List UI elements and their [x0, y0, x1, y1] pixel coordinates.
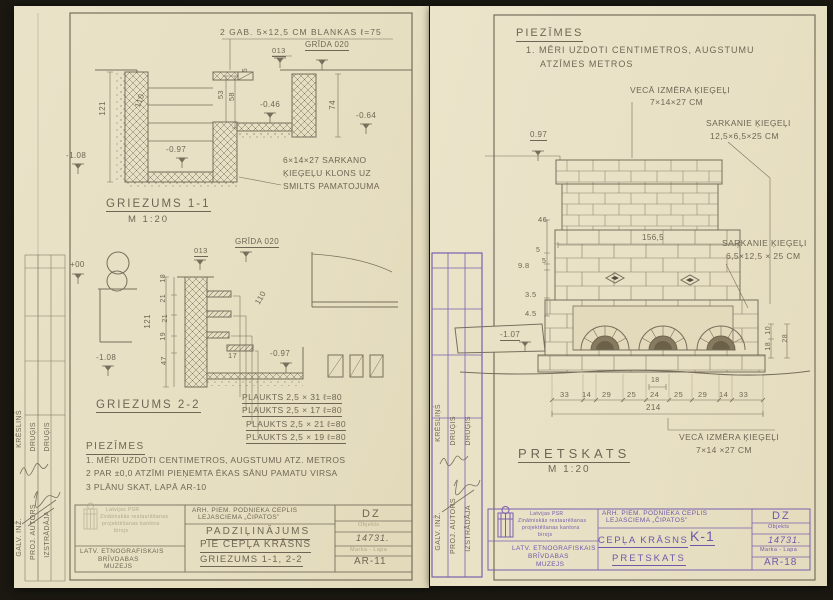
dim-label: 28	[782, 334, 789, 343]
role-galv-inz: GALV. INŽ.	[435, 512, 442, 551]
name-drugis-1: DRUĢIS	[30, 422, 37, 452]
tb-project-line-2: LEJASCIEMA „ČIPATOS”	[198, 515, 280, 522]
tb-title-1: CEPĻA KRĀSNS	[598, 536, 688, 548]
name-drugis-2: DRUĢIS	[44, 422, 51, 452]
role-izstradaja: IZSTRĀDĀJA	[44, 511, 51, 558]
section-title-1-1: GRIEZUMS 1-1	[106, 198, 211, 212]
kiln-elevation-drawing	[455, 160, 810, 375]
stamp-line-1: Latvijas PSR	[106, 508, 139, 513]
dim-label: 3.5	[525, 291, 537, 299]
signature-scribbles	[440, 456, 480, 512]
callout-veca-bottom-1: VECĀ IZMĒRA ĶIEĢEĻI	[679, 433, 779, 442]
grida-level-label: GRĪDA 020	[235, 238, 279, 248]
dim-label: 33	[739, 391, 748, 399]
museum-stamp-icon	[498, 507, 513, 538]
role-proj-autors: PROJ. AUTORS	[30, 504, 37, 560]
callout-veca-1: VECĀ IZMĒRA ĶIEĢEĻI	[630, 86, 730, 95]
dim-label: 25	[627, 391, 636, 399]
note-line-1: 1. MĒRI UZDOTI CENTIMETROS, AUGSTUMU ATZ…	[86, 456, 345, 465]
role-galv-inz: GALV. INŽ.	[16, 518, 23, 557]
tb-org-3: MUZEJS	[536, 562, 564, 569]
section-scale-1-1: M 1:20	[128, 215, 169, 225]
callout-sarkanie-1b: 12,5×6,5×25 CM	[710, 132, 779, 141]
view-scale: M 1:20	[548, 465, 591, 476]
stamp-line-2: Zinātniskās restaurēšanas	[100, 515, 168, 520]
name-drugis-1: DRUĢIS	[450, 416, 457, 446]
dim-label: 24	[650, 391, 659, 399]
level-label: -0.64	[356, 112, 376, 120]
tb-dz: DZ	[772, 511, 791, 523]
stamp-line-4: birojs	[538, 533, 552, 538]
shelf-label-3: PLAUKTS 2,5 × 21 ℓ=80	[246, 420, 346, 431]
name-kreslins: KRĒSLIŅŠ	[435, 404, 442, 442]
tb-title-3: GRIEZUMS 1-1, 2-2	[200, 555, 303, 567]
dim-label: 29	[602, 391, 611, 399]
tb-marka-label: Marka - Lapa	[350, 548, 387, 554]
dim-label: 14	[719, 391, 728, 399]
name-drugis-2: DRUĢIS	[465, 416, 472, 446]
dim-label: 25	[674, 391, 683, 399]
note-line-3: 3 PLĀNU SKAT, LAPĀ AR-10	[86, 483, 206, 492]
callout-sarkanie-2a: SARKANIE ĶIEĢEĻI	[722, 239, 807, 248]
dim-label: 21	[162, 314, 169, 323]
scanned-drawing-stage: 2 GAB. 5×12,5 CM BLANKAS ℓ=75GRĪDA 02001…	[0, 0, 833, 600]
shelf-label-4: PLAUKTS 2,5 × 19 ℓ=80	[246, 433, 346, 444]
tb-title-k1: K-1	[690, 529, 715, 546]
dim-label: 10	[765, 326, 772, 335]
role-izstradaja: IZSTRĀDĀJA	[465, 505, 472, 552]
note-line-2: 2 PAR ±0,0 ATZĪMI PIEŅEMTA ĒKAS SĀNU PAM…	[86, 469, 338, 478]
dim-label: 156,5	[642, 234, 664, 242]
role-proj-autors: PROJ. AUTORS	[450, 498, 457, 554]
dim-label: 74	[329, 100, 337, 110]
level-label: -1.07	[500, 331, 520, 341]
callout-veca-2: 7×14×27 CM	[650, 98, 703, 107]
shelf-label-1: PLAUKTS 2,5 × 31 ℓ=80	[242, 393, 342, 404]
dim-label: 18	[765, 342, 772, 351]
note-klons-1: 6×14×27 SARKANO	[283, 156, 367, 165]
stamp-line-4: birojs	[114, 529, 128, 534]
tb-org-3: MUZEJS	[104, 564, 132, 571]
view-title: PRETSKATS	[518, 447, 630, 463]
dim-label: 5	[242, 68, 249, 72]
dim-label: 5	[542, 258, 546, 265]
signature-scribbles	[20, 463, 60, 526]
dim-label: 14	[582, 391, 591, 399]
name-kreslins: KRĒSLIŅŠ	[16, 410, 23, 448]
tb-org-2: BRĪVDABAS	[528, 554, 569, 561]
level-label: -0.46	[260, 101, 280, 109]
dim-label: 17	[228, 352, 237, 360]
tb-org-1: LATV. ETNOGRAFISKAIS	[80, 549, 164, 556]
level-label: -1.08	[66, 152, 86, 160]
dim-label: 21	[160, 294, 167, 303]
tb-objekts-label: Objekts	[768, 525, 789, 531]
callout-sarkanie-2b: 6,5×12,5 × 25 CM	[726, 252, 800, 261]
shelf-label-2: PLAUKTS 2,5 × 17 ℓ=80	[242, 406, 342, 417]
notes-title: PIEZĪMES	[86, 442, 145, 455]
tb-sheet-number: AR-18	[764, 558, 797, 569]
tb-object-number: 14731.	[356, 534, 390, 543]
tb-title-1: PADZIĻINĀJUMS	[206, 527, 310, 540]
level-label: -0.97	[270, 350, 290, 358]
dim-label: 121	[144, 314, 152, 329]
dim-label: 58	[228, 92, 236, 101]
tb-project-line-2: LEJASCIEMA „ČIPATOS”	[606, 518, 688, 525]
dim-label: 18	[160, 274, 167, 283]
dim-label: 18	[651, 377, 660, 384]
dim-label: 53	[217, 90, 225, 99]
stamp-line-3: projektēšanas kantora	[102, 522, 160, 527]
tb-title-2: PIE CEPĻA KRĀSNS	[200, 540, 311, 553]
note-klons-3: SMILTS PAMATOJUMA	[283, 182, 380, 191]
note-line-2: ATZĪMES METROS	[540, 60, 633, 69]
note-line-1: 1. MĒRI UZDOTI CENTIMETROS, AUGSTUMU	[526, 46, 755, 55]
right-drawing-sheet: PIEZĪMES1. MĒRI UZDOTI CENTIMETROS, AUGS…	[430, 6, 827, 586]
dim-label: 19	[160, 332, 167, 341]
dim-label: 214	[646, 404, 661, 412]
left-drawing-sheet: 2 GAB. 5×12,5 CM BLANKAS ℓ=75GRĪDA 02001…	[14, 6, 429, 588]
tb-dz: DZ	[362, 509, 381, 521]
callout-sarkanie-1a: SARKANIE ĶIEĢEĻI	[706, 119, 791, 128]
notes-title: PIEZĪMES	[516, 28, 583, 42]
tb-objekts-label: Objekts	[358, 523, 379, 529]
callout-veca-bottom-2: 7×14 ×27 CM	[696, 446, 752, 455]
dim-label: 5	[536, 247, 540, 254]
dim-label: 013	[272, 47, 286, 57]
level-label: -0.97	[166, 146, 186, 154]
tb-title-2: PRETSKATS	[612, 554, 686, 566]
dim-label: 4.5	[525, 310, 537, 318]
section-title-2-2: GRIEZUMS 2-2	[96, 399, 201, 413]
tb-sheet-number: AR-11	[354, 557, 387, 568]
dim-label: 47	[160, 356, 168, 365]
museum-stamp-icon	[84, 503, 97, 529]
grida-level-label: GRĪDA 020	[305, 41, 349, 51]
tb-marka-label: Marka - Lapa	[760, 548, 797, 554]
note-klons-2: ĶIEĢEĻU KLONS UZ	[283, 169, 371, 178]
level-label: -1.08	[96, 354, 116, 362]
note-blankas: 2 GAB. 5×12,5 CM BLANKAS ℓ=75	[220, 28, 382, 37]
dim-label: 013	[194, 247, 208, 257]
dim-label: 33	[560, 391, 569, 399]
tb-object-number: 14731.	[768, 536, 802, 545]
stamp-line-2: Zinātniskās restaurēšanas	[518, 519, 586, 524]
dim-label: 9.8	[518, 262, 530, 270]
level-label: 0.97	[530, 131, 547, 141]
dim-label: 121	[99, 101, 107, 116]
dim-label: 29	[698, 391, 707, 399]
right-sheet-linework	[430, 6, 827, 586]
tb-org-1: LATV. ETNOGRAFISKAIS	[512, 546, 596, 553]
dim-label: 46	[538, 216, 547, 224]
level-label: +00	[70, 261, 85, 269]
stamp-line-1: Latvijas PSR	[530, 512, 563, 517]
stamp-line-3: projektēšanas kantora	[522, 526, 580, 531]
